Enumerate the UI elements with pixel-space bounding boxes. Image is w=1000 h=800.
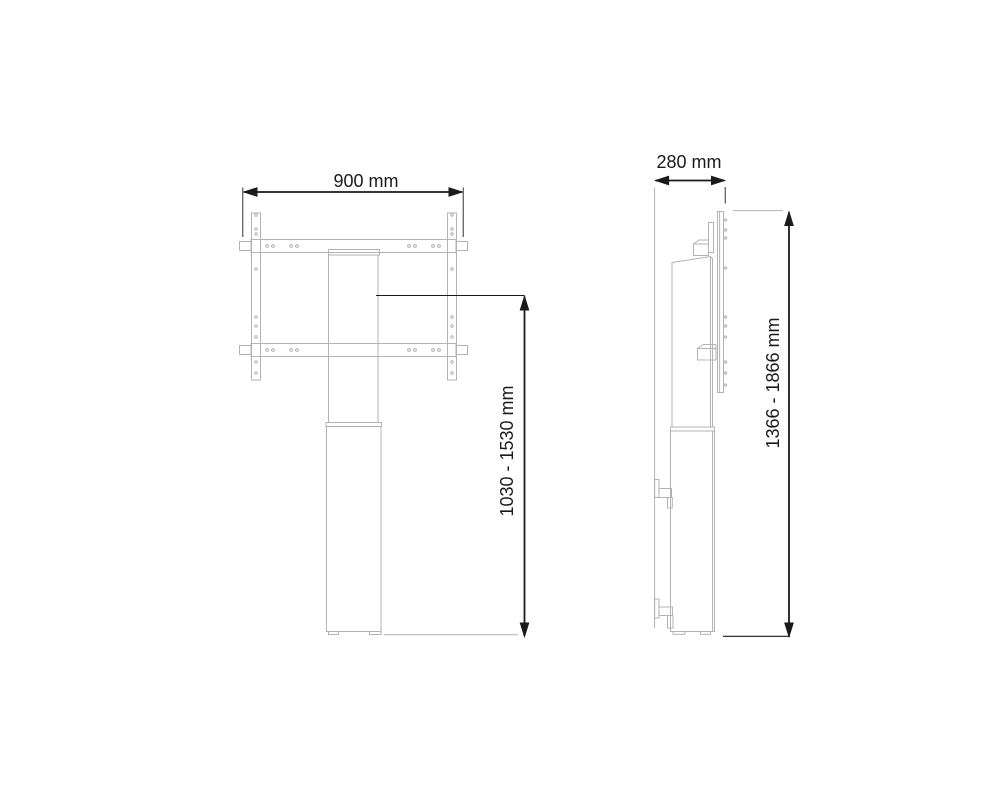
bottom-crossbar (240, 344, 468, 357)
arrow-right-icon (712, 176, 725, 184)
side-depth-dimension (656, 176, 726, 203)
right-vesa-rail (448, 213, 457, 380)
side-depth-label: 280 mm (656, 153, 721, 171)
arrow-down-icon (785, 623, 793, 637)
arrow-left-icon (656, 176, 669, 184)
front-height-label: 1030 - 1530 mm (498, 385, 516, 516)
front-width-label: 900 mm (333, 172, 398, 190)
arrow-up-icon (520, 297, 528, 311)
arrow-left-icon (244, 188, 257, 196)
top-crossbar (240, 240, 468, 253)
outer-column (327, 427, 382, 635)
front-width-dimension (243, 188, 463, 238)
upper-hook (694, 240, 709, 256)
wall-bracket-upper (655, 480, 673, 509)
bracket-plate (709, 223, 714, 253)
side-column-collar (671, 427, 715, 431)
arrow-right-icon (449, 188, 462, 196)
left-vesa-rail (252, 213, 261, 380)
dimension-drawing: 900 mm 1030 - 1530 mm 280 mm 1366 - 1866… (0, 0, 1000, 800)
side-height-label: 1366 - 1866 mm (764, 317, 782, 448)
front-view-dimensions (243, 188, 529, 637)
arrow-down-icon (520, 623, 528, 637)
inner-column (329, 250, 380, 423)
front-view-outline (240, 213, 519, 635)
side-outer-column (671, 431, 715, 634)
lower-hook (698, 345, 717, 361)
column-collar (326, 423, 382, 427)
mounting-holes (255, 214, 453, 374)
arrow-up-icon (785, 212, 793, 226)
side-inner-column (672, 257, 713, 428)
side-vesa-rail (718, 212, 727, 393)
